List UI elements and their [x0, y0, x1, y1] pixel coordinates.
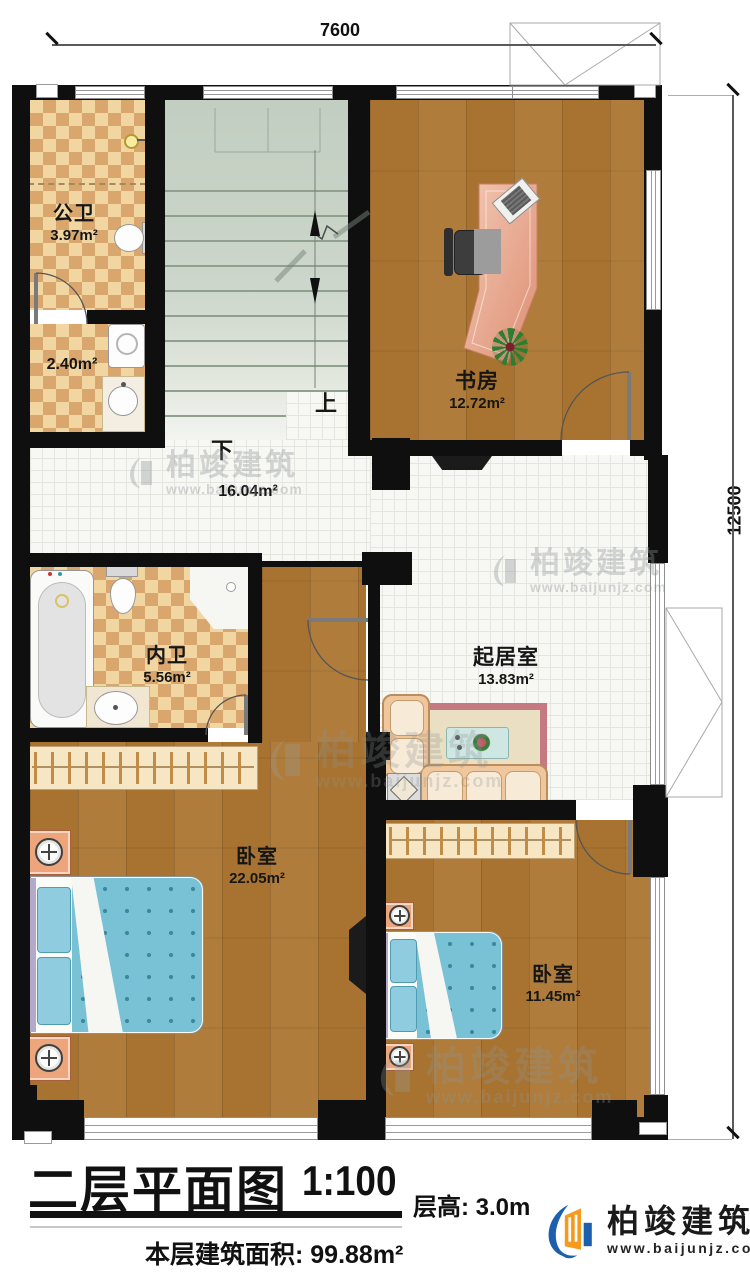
- dimension-ext-line: [668, 95, 732, 96]
- shower-drain: [226, 582, 236, 592]
- table-dot: [457, 745, 462, 750]
- window: [84, 1117, 318, 1140]
- window: [396, 86, 599, 99]
- table-dot: [455, 735, 460, 740]
- wall-segment: [262, 561, 370, 567]
- pillow: [37, 957, 71, 1025]
- bathtub-faucet-dot: [48, 572, 52, 576]
- window: [385, 1117, 592, 1140]
- wall-segment: [366, 732, 390, 760]
- wardrobe-hangers: [34, 752, 252, 784]
- wall-segment: [12, 553, 262, 567]
- dimension-top-line: [52, 44, 656, 46]
- laundry-sink: [108, 386, 138, 416]
- floor-area: 本层建筑面积: 99.88m²: [145, 1235, 403, 1271]
- chair-throw: [474, 229, 501, 274]
- wall-segment: [12, 432, 165, 448]
- pillow: [390, 986, 417, 1032]
- pillow: [37, 887, 71, 953]
- wall-segment: [248, 553, 262, 743]
- lamp-icon: [35, 838, 63, 866]
- window: [75, 86, 145, 99]
- sofa-cushion: [390, 738, 424, 774]
- drawing-scale: 1:100: [302, 1157, 397, 1205]
- room-label-public-bath: 公卫 3.97m²: [24, 203, 124, 244]
- faucet-icon: [121, 382, 126, 387]
- dimension-ext-line: [668, 1139, 732, 1140]
- floor-plan-canvas: 7600 12500: [0, 0, 750, 1277]
- wall-segment: [12, 728, 208, 742]
- window: [203, 86, 333, 99]
- dimension-top-label: 7600: [275, 20, 405, 41]
- dimension-right-label: 12500: [725, 471, 746, 551]
- shower-curtain-line: [28, 183, 146, 185]
- title-block: 二层平面图 1:100 层高: 3.0m 本层建筑面积: 99.88m² 柏竣建…: [0, 1145, 750, 1277]
- pillow: [390, 939, 417, 983]
- floor-vestibule: [262, 567, 366, 760]
- room-label-laundry: 2.40m²: [22, 356, 122, 375]
- bathtub-drain: [55, 594, 69, 608]
- wall-segment: [633, 785, 668, 877]
- table-flowers: [472, 733, 491, 752]
- floor-height: 层高: 3.0m: [413, 1187, 530, 1222]
- floor-hall: [30, 440, 370, 567]
- potted-plant: [492, 328, 528, 366]
- wall-segment: [37, 1100, 84, 1117]
- balcony-canopy: [666, 608, 722, 797]
- wall-segment: [630, 440, 662, 456]
- canopy-roof: [510, 23, 660, 85]
- wall-segment: [362, 552, 412, 585]
- window: [650, 877, 665, 1095]
- window: [646, 170, 661, 310]
- room-label-study: 书房 12.72m²: [417, 370, 537, 412]
- lamp-icon: [389, 905, 410, 926]
- room-label-hall: 16.04m²: [198, 483, 298, 502]
- wall-segment: [648, 455, 668, 563]
- sofa-cushion: [390, 700, 424, 736]
- wall-niche: [639, 1122, 667, 1135]
- wardrobe-hangers: [389, 827, 571, 855]
- logo-url: www.baijunjz.com: [607, 1240, 750, 1256]
- wall-segment: [348, 95, 370, 455]
- window-balcony-door: [650, 563, 665, 785]
- logo: 柏竣建筑 www.baijunjz.com: [545, 1200, 750, 1260]
- faucet-icon: [113, 705, 118, 710]
- wall-niche: [36, 84, 58, 98]
- room-label-bedroom-small: 卧室 11.45m²: [503, 964, 603, 1005]
- wall-niche: [634, 84, 656, 98]
- window-mullion: [512, 86, 513, 99]
- lamp-icon: [389, 1046, 410, 1067]
- wall-segment: [368, 585, 380, 735]
- tv-living: [432, 456, 492, 470]
- room-label-living: 起居室 13.83m²: [456, 646, 556, 688]
- wall-light-icon: [124, 134, 139, 149]
- title-underline-thin: [30, 1226, 402, 1228]
- lamp-icon: [35, 1044, 63, 1072]
- wall-segment: [592, 1100, 637, 1117]
- stair-label-down: 下: [208, 438, 236, 464]
- dimension-right-line: [732, 95, 734, 1139]
- logo-icon: [545, 1200, 599, 1260]
- office-chair-back: [444, 228, 453, 276]
- title-underline-thick: [30, 1211, 402, 1218]
- bathtub-faucet-dot: [58, 572, 62, 576]
- wall-segment: [145, 95, 165, 448]
- bed-headboard: [30, 878, 36, 1032]
- stair-label-up: 上: [312, 391, 340, 417]
- wall-segment: [318, 1100, 385, 1117]
- logo-name: 柏竣建筑: [607, 1205, 750, 1237]
- room-label-bedroom-big: 卧室 22.05m²: [207, 846, 307, 887]
- wall-segment: [366, 800, 576, 820]
- wall-segment: [87, 310, 165, 324]
- washing-machine-drum: [116, 333, 138, 355]
- wall-segment: [372, 438, 410, 490]
- wall-niche: [24, 1131, 52, 1144]
- room-label-master-bath: 内卫 5.56m²: [117, 645, 217, 686]
